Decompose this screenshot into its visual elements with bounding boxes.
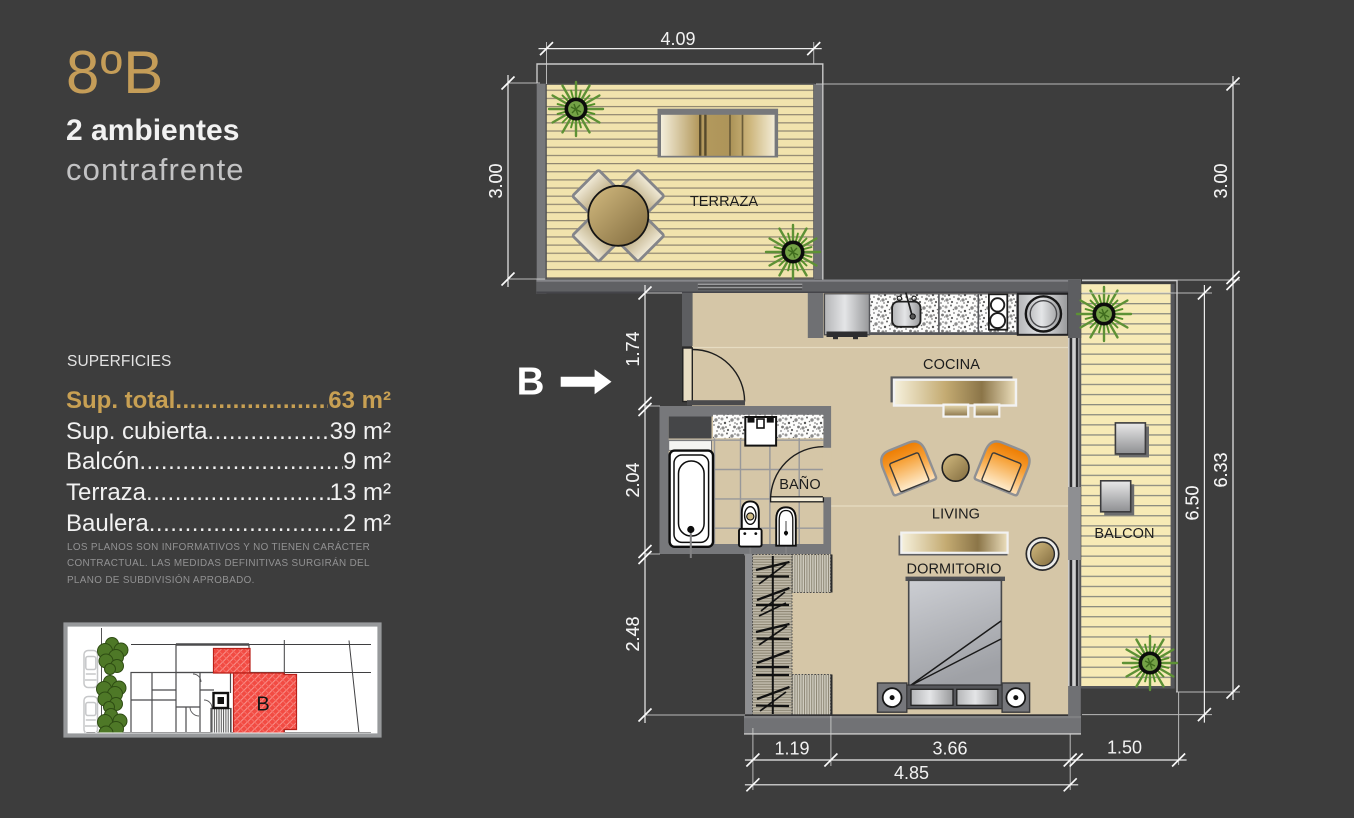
svg-text:BAÑO: BAÑO [779,476,821,493]
svg-text:3.00: 3.00 [486,163,506,198]
svg-text:2.04: 2.04 [623,462,643,497]
svg-text:B: B [256,694,269,716]
svg-text:3.66: 3.66 [932,739,967,759]
svg-text:BALCON: BALCON [1094,526,1154,542]
svg-text:4.09: 4.09 [660,29,695,49]
svg-text:LIVING: LIVING [932,507,980,523]
svg-text:6.33: 6.33 [1211,452,1231,487]
svg-text:1.74: 1.74 [623,331,643,366]
svg-text:1.50: 1.50 [1107,738,1142,758]
svg-text:1.19: 1.19 [774,739,809,759]
svg-text:COCINA: COCINA [923,357,980,373]
svg-text:4.85: 4.85 [894,763,929,783]
svg-text:DORMITORIO: DORMITORIO [907,562,1002,578]
svg-text:3.00: 3.00 [1211,163,1231,198]
svg-text:TERRAZA: TERRAZA [690,194,759,210]
svg-text:6.50: 6.50 [1182,485,1202,520]
svg-text:B: B [517,361,545,404]
svg-text:2.48: 2.48 [623,616,643,651]
